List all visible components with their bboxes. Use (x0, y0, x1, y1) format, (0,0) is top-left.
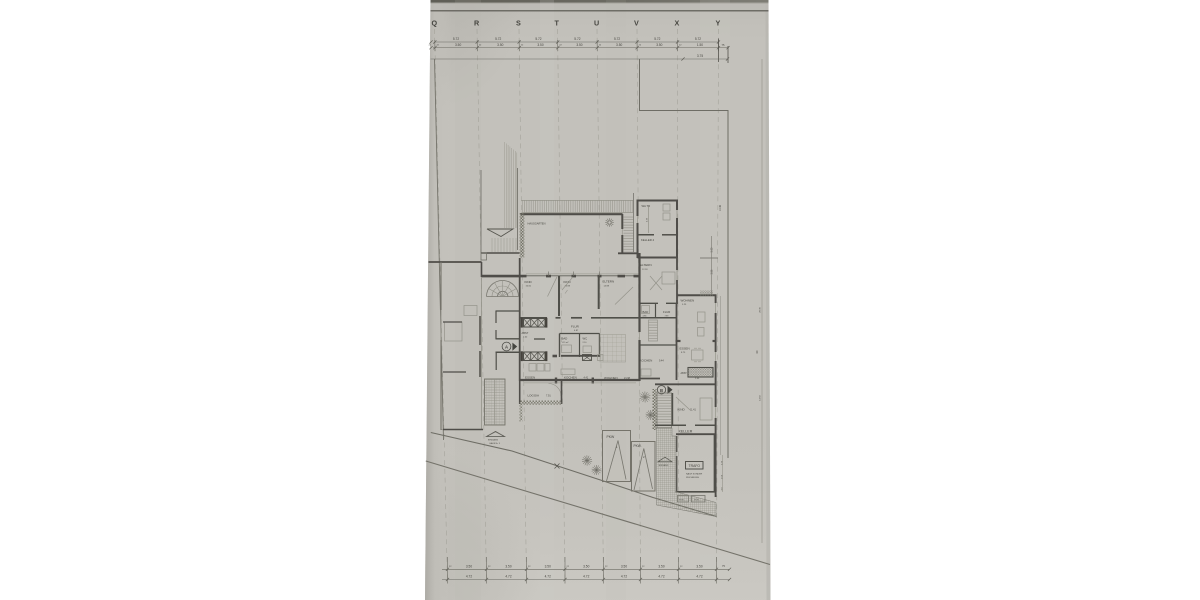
svg-text:3.50: 3.50 (621, 564, 627, 568)
svg-text:5.00: 5.00 (711, 247, 714, 252)
svg-text:ELTERN: ELTERN (603, 280, 615, 284)
svg-text:4.72: 4.72 (466, 575, 472, 579)
svg-text:3.50: 3.50 (466, 564, 472, 568)
svg-text:WOHNEN: WOHNEN (604, 376, 618, 380)
svg-text:PKW: PKW (607, 435, 616, 439)
svg-text:3.50: 3.50 (583, 564, 589, 568)
svg-text:T: T (555, 19, 560, 28)
svg-text:14.36: 14.36 (719, 204, 722, 211)
svg-text:R: R (474, 19, 480, 28)
svg-text:ESSEN: ESSEN (525, 375, 535, 379)
svg-text:5.72: 5.72 (495, 37, 501, 41)
svg-text:BAD: BAD (562, 337, 568, 341)
svg-text:3.50: 3.50 (576, 43, 582, 47)
svg-text:WC: WC (583, 337, 588, 341)
svg-text:ESSEN: ESSEN (680, 347, 690, 351)
svg-text:X: X (675, 19, 680, 28)
svg-text:21.98: 21.98 (624, 377, 631, 380)
svg-text:KIND: KIND (678, 408, 686, 412)
svg-text:Y: Y (716, 19, 721, 28)
svg-text:Q: Q (432, 19, 438, 28)
svg-text:5.72: 5.72 (654, 37, 660, 41)
svg-text:12.18: 12.18 (642, 269, 648, 271)
svg-text:4.72: 4.72 (658, 575, 664, 579)
svg-text:5.72: 5.72 (535, 37, 541, 41)
svg-text:16.50: 16.50 (526, 286, 532, 288)
svg-text:4.72: 4.72 (583, 575, 589, 579)
svg-text:KELLER 4: KELLER 4 (641, 238, 655, 242)
svg-text:S: S (516, 19, 521, 28)
svg-text:14.98: 14.98 (604, 285, 610, 287)
svg-text:1.50: 1.50 (697, 43, 703, 47)
svg-text:3.50: 3.50 (537, 43, 543, 47)
svg-text:3.86: 3.86 (711, 269, 714, 274)
svg-text:ABST: ABST (522, 331, 529, 335)
svg-text:1.15 m²: 1.15 m² (562, 341, 569, 344)
svg-text:11.41: 11.41 (690, 409, 696, 412)
svg-text:4.72: 4.72 (545, 575, 551, 579)
svg-text:HAUSGARTEN: HAUSGARTEN (528, 222, 546, 226)
svg-text:LOGGIA: LOGGIA (528, 394, 540, 398)
svg-text:3.50: 3.50 (455, 43, 461, 47)
svg-text:9.44: 9.44 (659, 360, 664, 363)
svg-text:4.41: 4.41 (584, 377, 589, 380)
svg-text:A: A (505, 345, 508, 350)
svg-text:4.72: 4.72 (505, 575, 511, 579)
svg-text:ZEICHNUNG: ZEICHNUNG (686, 477, 699, 479)
svg-text:3.50: 3.50 (545, 564, 551, 568)
svg-text:EINGANG: EINGANG (488, 439, 498, 442)
svg-text:5.72: 5.72 (614, 37, 620, 41)
svg-text:5.72: 5.72 (574, 37, 580, 41)
svg-text:7.91: 7.91 (546, 395, 551, 398)
svg-text:V: V (634, 19, 639, 28)
svg-text:HAUS Nr. 3: HAUS Nr. 3 (490, 442, 501, 445)
svg-text:14.50: 14.50 (760, 394, 762, 400)
svg-text:WOHNEN: WOHNEN (681, 299, 695, 303)
svg-text:PKW.: PKW. (634, 444, 642, 448)
svg-text:ABST: ABST (681, 372, 688, 375)
svg-text:NACH SONDER: NACH SONDER (686, 473, 703, 476)
svg-text:3.50: 3.50 (497, 43, 503, 47)
svg-text:3.50: 3.50 (696, 564, 702, 568)
svg-text:4.72: 4.72 (696, 575, 702, 579)
svg-text:28.36: 28.36 (760, 306, 762, 312)
svg-text:3.50: 3.50 (658, 564, 664, 568)
svg-text:ELTERN: ELTERN (640, 263, 652, 267)
svg-text:B: B (660, 388, 663, 393)
svg-text:5.72: 5.72 (453, 37, 459, 41)
svg-text:KOCHEN: KOCHEN (564, 376, 577, 380)
svg-text:3.50: 3.50 (656, 43, 662, 47)
svg-text:TRAFO: TRAFO (689, 464, 701, 468)
svg-text:4.72: 4.72 (621, 575, 627, 579)
svg-text:WA TR: WA TR (642, 204, 651, 208)
svg-text:5.72: 5.72 (695, 37, 701, 41)
svg-text:FLUR: FLUR (571, 325, 580, 329)
svg-text:KIND: KIND (525, 280, 533, 284)
svg-text:FLUR: FLUR (663, 310, 670, 314)
svg-text:3.75: 3.75 (697, 54, 703, 58)
svg-text:U: U (594, 19, 599, 28)
svg-text:KELLER: KELLER (679, 430, 693, 434)
svg-text:KOCHEN: KOCHEN (640, 359, 653, 363)
svg-text:3.50: 3.50 (505, 564, 511, 568)
svg-text:3.50: 3.50 (616, 43, 622, 47)
